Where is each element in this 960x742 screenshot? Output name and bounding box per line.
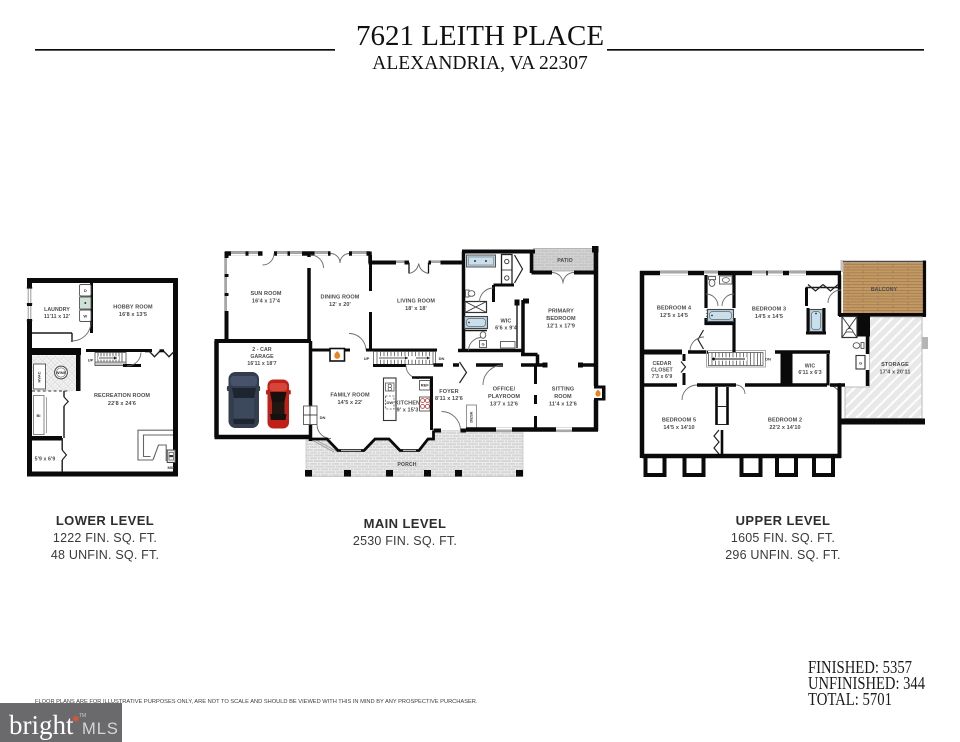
svg-text:TOTAL: 5701: TOTAL: 5701 (808, 689, 892, 709)
svg-text:STORAGE: STORAGE (881, 362, 909, 368)
svg-text:FAMILY ROOM: FAMILY ROOM (330, 393, 370, 399)
svg-text:16'4 x 17'4: 16'4 x 17'4 (252, 299, 281, 305)
svg-text:MAIN LEVEL: MAIN LEVEL (364, 516, 447, 531)
svg-text:DW: DW (386, 400, 393, 405)
svg-text:BEDROOM 2: BEDROOM 2 (768, 418, 802, 424)
svg-text:7621 LEITH PLACE: 7621 LEITH PLACE (356, 20, 604, 52)
svg-text:GARAGE: GARAGE (250, 354, 274, 360)
svg-text:SUN ROOM: SUN ROOM (250, 291, 281, 297)
svg-text:16'11 x 18'7: 16'11 x 18'7 (247, 361, 276, 367)
svg-text:BEDROOM 4: BEDROOM 4 (657, 306, 692, 312)
svg-text:12' x 20': 12' x 20' (329, 302, 351, 308)
svg-text:1222 FIN. SQ. FT.: 1222 FIN. SQ. FT. (53, 531, 157, 545)
svg-text:PLAYROOM: PLAYROOM (488, 394, 520, 400)
svg-text:DN: DN (765, 357, 771, 362)
svg-text:ALEXANDRIA, VA 22307: ALEXANDRIA, VA 22307 (372, 53, 588, 74)
svg-text:UP: UP (364, 356, 370, 361)
svg-text:2 - CAR: 2 - CAR (252, 347, 272, 353)
svg-text:1605 FIN. SQ. FT.: 1605 FIN. SQ. FT. (731, 531, 835, 545)
svg-text:8'11 x 12'6: 8'11 x 12'6 (435, 396, 463, 402)
svg-text:16'8 x 13'5: 16'8 x 13'5 (119, 312, 147, 318)
svg-text:HVAC: HVAC (37, 371, 42, 382)
svg-text:14'5 x 14'5: 14'5 x 14'5 (755, 314, 783, 320)
svg-text:CLOSET: CLOSET (651, 368, 673, 374)
svg-text:22'8 x 24'6: 22'8 x 24'6 (108, 401, 136, 407)
svg-text:48 UNFIN. SQ. FT.: 48 UNFIN. SQ. FT. (51, 548, 159, 562)
svg-text:DESK: DESK (469, 411, 474, 422)
svg-text:OFFICE/: OFFICE/ (493, 387, 516, 393)
svg-text:WIC: WIC (501, 319, 512, 325)
svg-text:W: W (83, 314, 87, 319)
svg-text:DINING ROOM: DINING ROOM (321, 295, 360, 301)
svg-text:PRIMARY: PRIMARY (548, 309, 574, 315)
svg-text:DN: DN (439, 356, 445, 361)
svg-text:12'1 x 17'9: 12'1 x 17'9 (547, 324, 575, 330)
svg-text:SITTING: SITTING (552, 387, 574, 393)
svg-text:6'6 x 9'4: 6'6 x 9'4 (495, 326, 518, 332)
svg-text:MLS: MLS (82, 720, 119, 738)
svg-text:REF: REF (421, 383, 430, 388)
svg-text:HOBBY ROOM: HOBBY ROOM (113, 305, 153, 311)
svg-text:18' x 18': 18' x 18' (405, 306, 427, 312)
svg-text:2530 FIN. SQ. FT.: 2530 FIN. SQ. FT. (353, 534, 457, 548)
svg-text:6'11 x 6'3: 6'11 x 6'3 (798, 370, 821, 376)
svg-text:WIC: WIC (805, 364, 816, 370)
svg-text:BALCONY: BALCONY (871, 287, 898, 293)
svg-text:11'11 x 12': 11'11 x 12' (44, 314, 70, 320)
svg-text:17'4 x 20'11: 17'4 x 20'11 (879, 370, 910, 376)
svg-text:9' x 15'3: 9' x 15'3 (397, 408, 419, 414)
svg-text:22'2 x 14'10: 22'2 x 14'10 (769, 425, 800, 431)
svg-text:KITCHEN: KITCHEN (395, 401, 420, 407)
svg-text:ROOM: ROOM (554, 394, 572, 400)
svg-text:RECREATION ROOM: RECREATION ROOM (94, 393, 150, 399)
svg-text:MIX: MIX (167, 465, 174, 470)
svg-text:D: D (84, 288, 87, 293)
svg-text:BEDROOM 3: BEDROOM 3 (752, 307, 786, 313)
svg-text:BEDROOM 5: BEDROOM 5 (662, 418, 696, 424)
svg-text:UP: UP (88, 358, 94, 363)
svg-text:7'3 x 6'9: 7'3 x 6'9 (652, 374, 673, 380)
svg-text:14'5 x 22': 14'5 x 22' (337, 400, 363, 406)
svg-text:296 UNFIN. SQ. FT.: 296 UNFIN. SQ. FT. (725, 548, 840, 562)
svg-text:bright: bright (9, 710, 74, 740)
svg-text:G: G (481, 342, 484, 347)
svg-text:12'5 x 14'5: 12'5 x 14'5 (660, 313, 688, 319)
svg-text:BI: BI (37, 413, 41, 418)
svg-text:13'7 x 12'6: 13'7 x 12'6 (490, 402, 518, 408)
svg-text:11'4 x 12'6: 11'4 x 12'6 (549, 402, 577, 408)
svg-text:5'9 x 6'9: 5'9 x 6'9 (35, 457, 56, 463)
svg-text:PATIO: PATIO (557, 258, 573, 264)
svg-text:PORCH: PORCH (397, 462, 416, 468)
svg-text:LAUNDRY: LAUNDRY (44, 307, 70, 313)
svg-text:UPPER LEVEL: UPPER LEVEL (736, 513, 831, 528)
svg-text:G: G (859, 361, 862, 366)
svg-text:DN: DN (320, 415, 326, 420)
svg-text:LOWER LEVEL: LOWER LEVEL (56, 513, 154, 528)
svg-text:BEDROOM: BEDROOM (546, 316, 576, 322)
svg-text:WINE: WINE (56, 370, 67, 375)
svg-text:14'5 x 14'10: 14'5 x 14'10 (663, 425, 694, 431)
svg-text:TM: TM (79, 713, 86, 719)
svg-text:LIVING ROOM: LIVING ROOM (397, 299, 435, 305)
svg-text:FOYER: FOYER (439, 389, 458, 395)
svg-text:CEDAR: CEDAR (653, 361, 672, 367)
